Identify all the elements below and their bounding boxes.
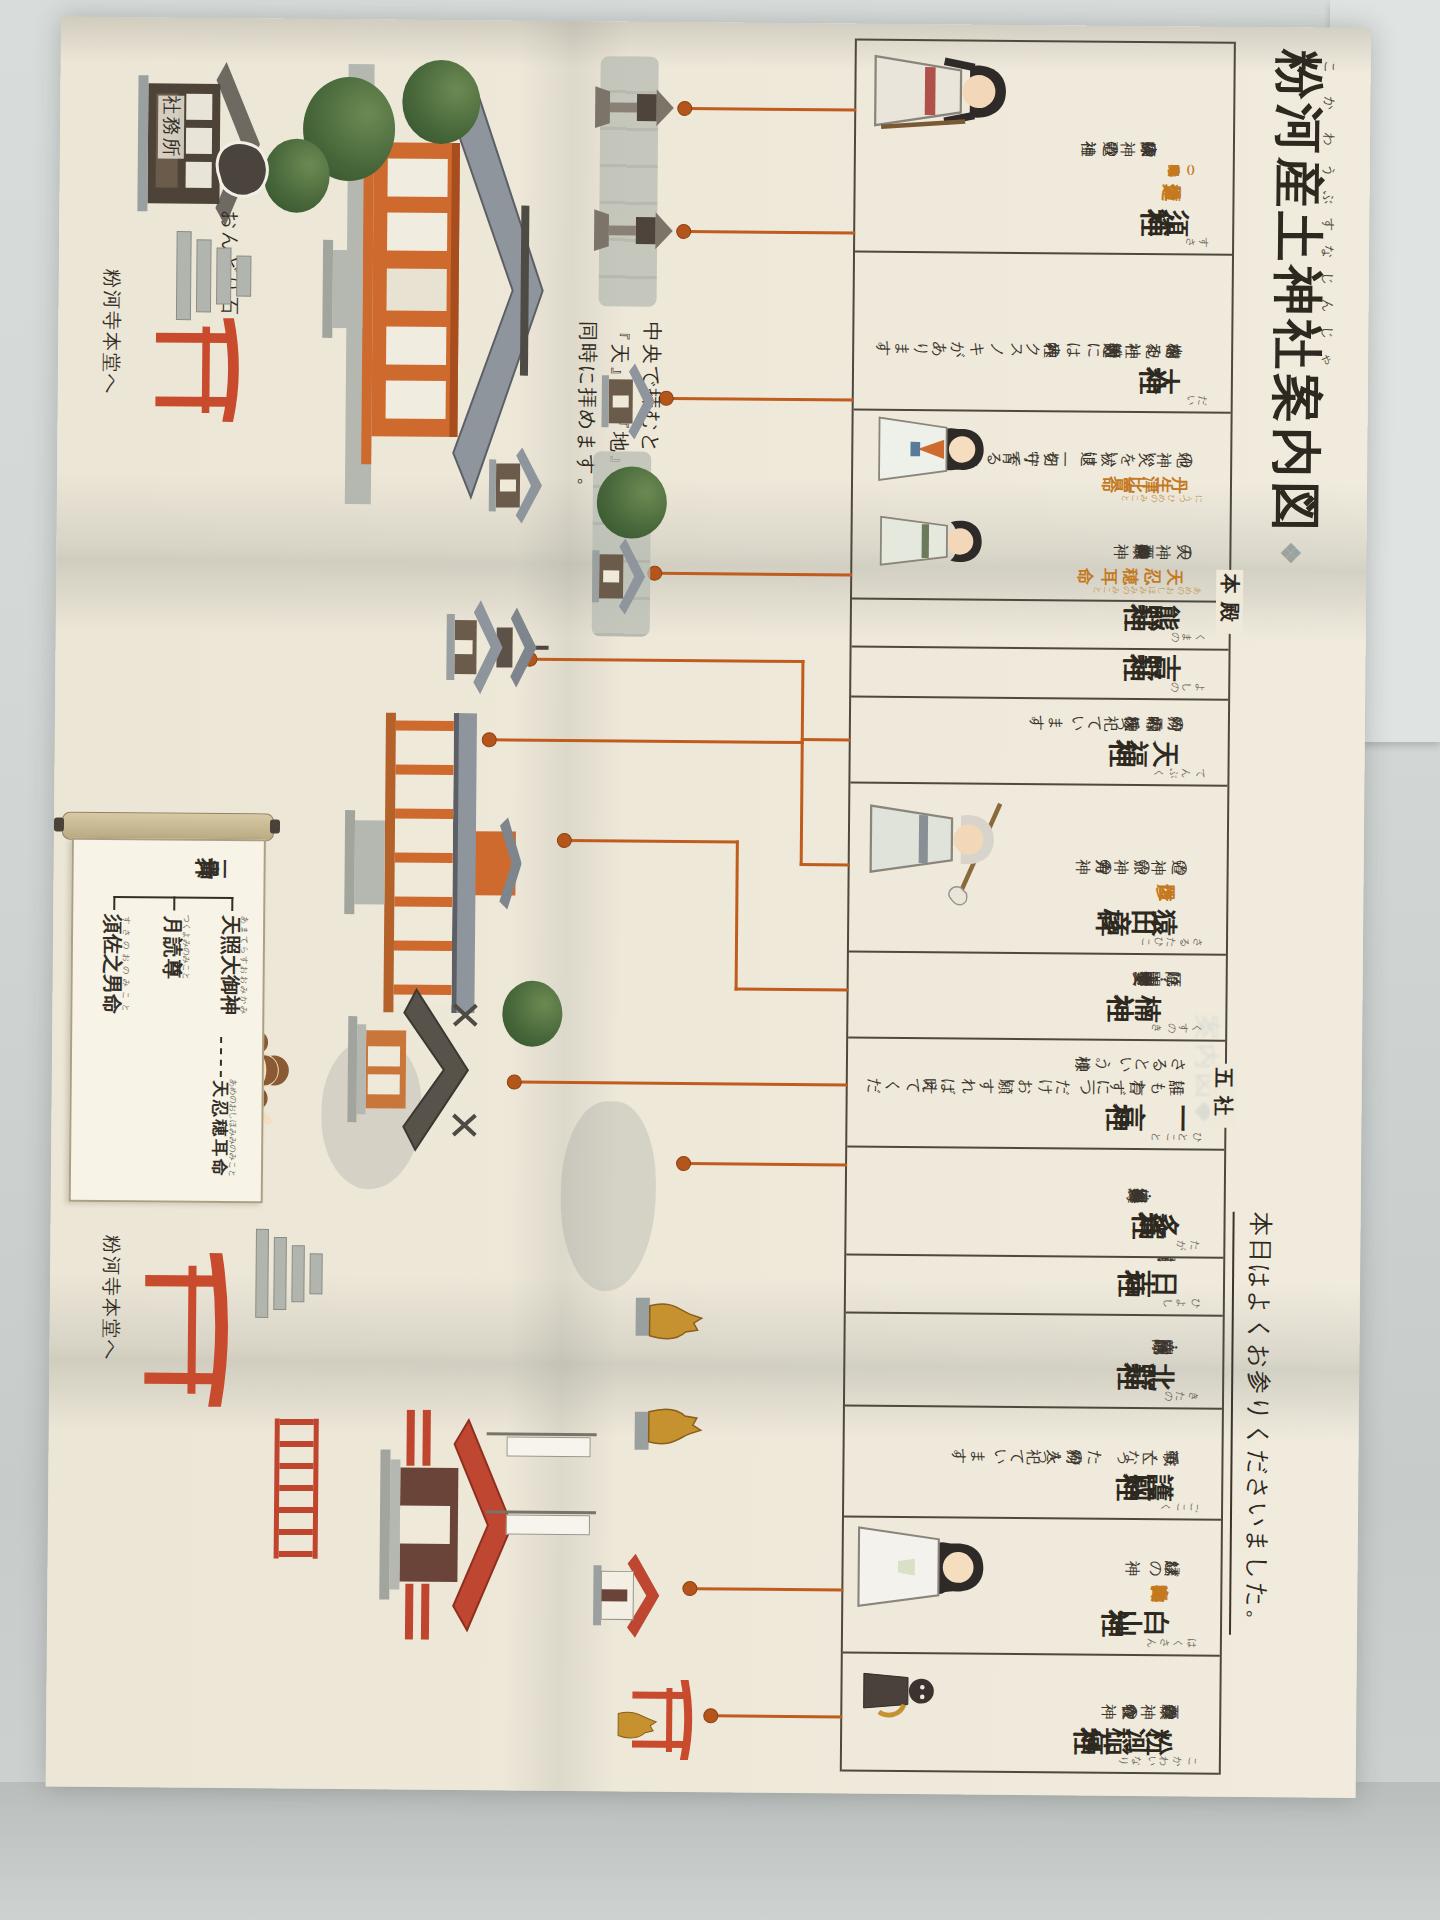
connector-line <box>670 397 854 402</box>
shrine-name: 熊野くまの神社 <box>862 598 1213 643</box>
shrine-name: 粉河稲荷こかわいなり神社 <box>852 1722 1203 1767</box>
deity-name: 須佐之男命(素戔嗚尊) <box>865 159 1216 206</box>
kokawadera-direction-label: 粉河寺本堂へ <box>97 1235 124 1362</box>
connector-line <box>688 107 856 111</box>
shrine-description: 疫病祓除の神、歌道の祖神 <box>866 136 1217 162</box>
connector-line <box>687 1162 847 1166</box>
table-cell-hiyoshi: 日吉ひよし神社 開運・厄除け <box>846 1253 1223 1314</box>
tree <box>402 60 481 145</box>
tree <box>597 466 668 539</box>
shrine-name: 大だい神社 <box>864 361 1215 406</box>
table-cell-yoshino: 吉野よしの神社 <box>851 645 1228 698</box>
table-cell-kumano: 熊野くまの神社 <box>852 597 1229 648</box>
bracket-line <box>113 896 115 910</box>
connector-line <box>567 839 739 844</box>
sarutahiko-illustration <box>853 788 1014 909</box>
hakusanhime-illustration <box>847 1521 988 1612</box>
photo-of-shrine-guide-pamphlet: { "colors":{"background":"#d3d8d7","pape… <box>0 0 1440 1920</box>
connector-dot <box>682 1581 697 1596</box>
shrine-name: 楠くすのき神社 <box>858 989 1209 1034</box>
sanki-shin-label: 三貴神 <box>229 855 241 883</box>
shrine-description: 誰にも言わずに一つだけお願いすれば叶えてくださるという神様。 <box>858 1051 1209 1101</box>
bracket-line <box>231 897 233 911</box>
susanoo-name: 須佐之男命すさのおのみこと <box>98 914 131 1014</box>
shrine-table: 須佐すさ神社 須佐之男命(素戔嗚尊) 疫病祓除の神、歌道の祖神 大だい神社 大楠… <box>840 38 1236 1774</box>
oshihomimi-illustration <box>866 504 987 579</box>
inari-torii-and-fox <box>612 1673 705 1766</box>
shrine-description: 学問・至誠・厄除け <box>855 1333 1206 1359</box>
shrine-description: 厄除け・開運・家内安全・交通安全 <box>859 965 1210 991</box>
stone-stairs <box>150 225 261 326</box>
red-fence <box>274 1418 319 1558</box>
scroll-paper: 三貴神 天照大御神あまてらすおおみかみ 月読尊つくよみのみこと 須佐之男命すさの… <box>69 838 266 1204</box>
shrine-name: 一言ひとこと神社 <box>857 1098 1208 1143</box>
shrine-name: 護國ごこく神社 <box>854 1468 1205 1513</box>
connector-line <box>801 660 805 741</box>
table-cell-hakusan: 白山はくさん神社 白山比咩大神 縁結びの神 <box>843 1515 1221 1654</box>
table-cell-sarutahiko: 猿田彦さるたひこ碑 佐田彦 道の神、旅の神、方角の神 <box>849 781 1227 953</box>
oshihomimi-name: 天忍穂耳命あめのおしほみみのみこと <box>208 1079 238 1177</box>
deity-group-niutsuhime: 丹生津比賣命にうつひめのみこと 地の神、災いを祓い退け、一切を守り育てる女神 <box>863 408 1215 502</box>
connector-line <box>735 987 849 991</box>
table-cell-susa: 須佐すさ神社 須佐之男命(素戔嗚尊) 疫病祓除の神、歌道の祖神 <box>855 39 1234 254</box>
stone-path <box>560 1101 657 1292</box>
three-noble-kami-scroll: 三貴神 天照大御神あまてらすおおみかみ 月読尊つくよみのみこと 須佐之男命すさの… <box>67 812 268 1209</box>
shrine-description: 戦争で亡くなった粉河の人を祀っています。 <box>854 1444 1205 1470</box>
kokawadera-direction-label: 粉河寺本堂へ <box>98 269 125 396</box>
connector-line <box>492 738 804 744</box>
red-gate-complex <box>312 1409 539 1641</box>
connector-dot <box>677 101 692 116</box>
table-cell-kokawa-inari: 粉河稲荷こかわいなり神社 五穀豊穣の神、衣食住の神 <box>842 1651 1220 1774</box>
gosha-group-label: 五社 <box>1209 1064 1237 1128</box>
shrine-office-label: 社務所 <box>158 95 185 158</box>
connector-dot <box>703 1708 718 1723</box>
tsukuyomi-name: 月読尊つくよみのみこと <box>159 914 192 980</box>
shrine-name: 天福てんぷく神社 <box>860 734 1211 779</box>
lineage-dash <box>220 1037 222 1077</box>
connector-line <box>801 738 851 741</box>
corridor-and-gate <box>325 712 523 1014</box>
connector-line <box>735 840 739 990</box>
connector-line <box>800 741 804 866</box>
shrine-name: 須佐すさ神社 <box>865 203 1216 248</box>
connector-dot <box>676 224 691 239</box>
table-cell-tenpuku: 天福てんぷく神社 粉河の天福町の氏神様を祀っています。 <box>850 695 1228 784</box>
red-small-shrine <box>585 1549 668 1642</box>
inari-figure-illustration <box>846 1657 943 1724</box>
red-torii <box>139 1249 240 1410</box>
title-ornament: ❖ <box>1275 541 1304 569</box>
small-shrine <box>595 361 660 442</box>
worship-hall <box>333 984 484 1155</box>
table-cell-kusunoki: 楠くすのき神社 厄除け・開運・家内安全・交通安全 <box>848 950 1226 1039</box>
niutsuhime-illustration <box>867 412 988 487</box>
white-banner <box>507 1437 591 1458</box>
white-banner <box>506 1515 590 1536</box>
shrine-name: 吉野よしの神社 <box>861 648 1212 693</box>
connector-dot <box>676 1156 691 1171</box>
honden-group-label: 本殿 <box>1216 570 1244 634</box>
amaterasu-name: 天照大御神あまてらすおおみかみ <box>216 915 249 1015</box>
connector-line <box>693 1587 843 1591</box>
table-cell-dai: 大だい神社 大楠樹を祀る神社。粉河寺大門近くには大神社のクスノキがあります。 <box>854 251 1232 412</box>
pagoda-tower <box>442 592 551 703</box>
susanoo-illustration <box>860 45 1011 138</box>
connector-line <box>800 863 850 866</box>
shrine-description: 健康回復・延命長寿 <box>857 1182 1208 1208</box>
fox-statue <box>626 1404 710 1459</box>
table-cell-gokoku: 護國ごこく神社 戦争で亡くなった粉河の人を祀っています。 <box>844 1404 1222 1518</box>
table-cell-honden-deities: 天忍穂耳命あめのおしほみみのみこと 天の神、五穀農業豊穣の神、 丹生津比賣命にう… <box>852 408 1231 600</box>
connector-line <box>518 1081 848 1087</box>
page-title: 粉河こかわ産土うぶすな神社じんじゃ案内図❖ <box>1261 49 1337 569</box>
shrine-description: 大楠樹を祀る神社。粉河寺大門近くには大神社のクスノキがあります。 <box>864 337 1215 363</box>
red-torii <box>150 315 251 424</box>
scroll-knob <box>54 818 64 832</box>
connector-dot <box>557 833 572 848</box>
table-cell-kitano: 北野きたの神社 学問・至誠・厄除け <box>845 1311 1223 1407</box>
shrine-name: 日吉ひよし神社 <box>856 1264 1207 1309</box>
shrine-name: 北野きたの神社 <box>855 1357 1206 1402</box>
connector-line <box>658 572 852 577</box>
connector-line <box>532 658 804 663</box>
table-cell-taga: 多賀たが神社 健康回復・延命長寿 <box>846 1145 1224 1256</box>
shrine-name: 多賀たが神社 <box>856 1206 1207 1251</box>
pamphlet: 粉河こかわ産土うぶすな神社じんじゃ案内図❖ 本日はよくお参りくださいました。 案… <box>46 17 1371 1798</box>
table-surface <box>0 1782 1440 1920</box>
connector-line <box>687 230 855 234</box>
greeting-text: 本日はよくお参りくださいました。 <box>1229 1212 1277 1635</box>
fox-statue <box>627 1290 711 1345</box>
bracket-line <box>173 897 175 911</box>
table-cell-hitokoto: 一言ひとこと神社 誰にも言わずに一つだけお願いすれば叶えてくださるという神様。 <box>847 1036 1225 1148</box>
stone-lantern <box>590 76 677 139</box>
ondori-stone <box>213 136 274 203</box>
scroll-knob <box>270 819 280 833</box>
shrine-description: 粉河の天福町の氏神様を祀っています。 <box>861 710 1212 736</box>
connector-line <box>714 1714 842 1718</box>
connector-dot <box>507 1074 522 1089</box>
stone-lantern <box>589 199 676 262</box>
small-shrine <box>586 536 651 617</box>
shrine-name: 猿田彦さるたひこ碑 <box>859 903 1210 948</box>
deity-group-oshihomimi: 天忍穂耳命あめのおしほみみのみこと 天の神、五穀農業豊穣の神、 <box>862 500 1214 595</box>
